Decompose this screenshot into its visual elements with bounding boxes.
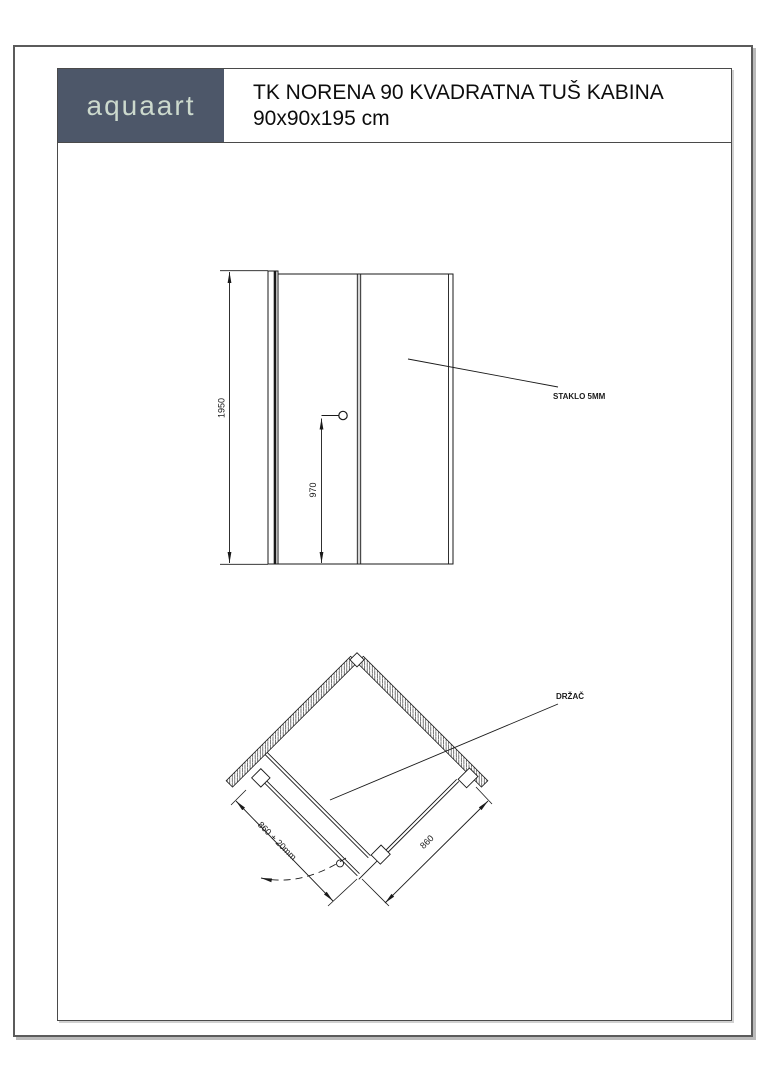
extension-line [362, 879, 389, 906]
front-elevation-view [220, 271, 558, 565]
closing-profile-tail [359, 861, 377, 879]
door-divider-profile [357, 274, 360, 564]
page: { "header": { "brand": "aquaart", "title… [0, 0, 768, 1086]
drawing-canvas: STAKLO 5MM 1950 970 [58, 143, 731, 1020]
handle-height-dimension-label: 970 [308, 482, 318, 497]
fixed-side-dimension-label: 860 [418, 833, 436, 851]
product-title-line1: TK NORENA 90 KVADRATNA TUŠ KABINA [253, 80, 731, 106]
title-block: aquaart TK NORENA 90 KVADRATNA TUŠ KABIN… [58, 69, 731, 143]
door-glass-line [267, 781, 360, 874]
extension-line [328, 879, 357, 906]
door-swing-arc [261, 858, 346, 880]
brand-logo: aquaart [58, 69, 224, 142]
handle-label: DRŽAČ [556, 692, 584, 701]
brand-logo-text: aquaart [87, 90, 196, 122]
door-side-dimension-label: 860 + 20mm [256, 820, 299, 863]
wall-hatched-right [357, 656, 488, 787]
handle-leader-line [330, 704, 558, 800]
hinge-profile [252, 769, 270, 787]
height-dimension-label: 1950 [217, 398, 227, 418]
product-title: TK NORENA 90 KVADRATNA TUŠ KABINA 90x90x… [224, 69, 731, 142]
product-title-line2: 90x90x195 cm [253, 106, 731, 132]
wall-hatched-left [226, 656, 357, 787]
plan-view [226, 650, 488, 912]
drawing-sheet: aquaart TK NORENA 90 KVADRATNA TUŠ KABIN… [57, 68, 732, 1021]
glass-label: STAKLO 5MM [553, 392, 606, 401]
fixed-side-dimension-line [385, 801, 488, 903]
glass-panel-outline [278, 274, 453, 564]
closing-profile [371, 845, 390, 864]
wall-profile [268, 271, 278, 564]
technical-drawing: STAKLO 5MM 1950 970 [58, 143, 731, 1020]
extension-line [476, 787, 492, 804]
handle-knob [339, 411, 347, 419]
extension-line [231, 790, 246, 805]
